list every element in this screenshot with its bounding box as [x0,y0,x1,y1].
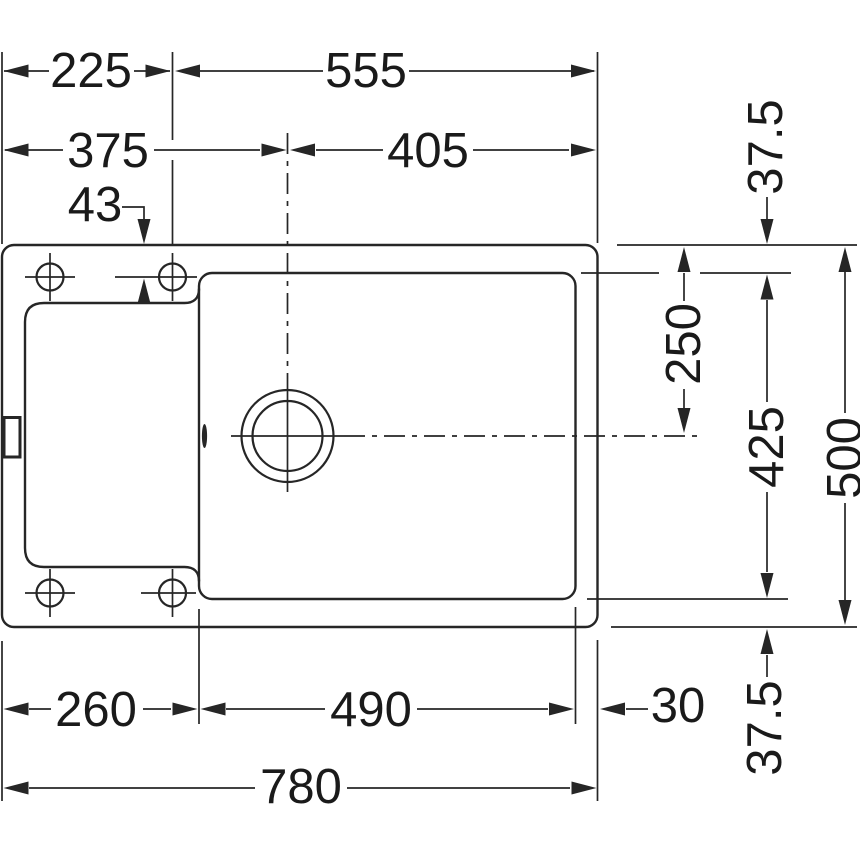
arrow-down [138,219,151,244]
arrow-down [761,573,774,598]
arrow-up [839,247,852,272]
arrow-right [572,782,597,795]
arrow-down [678,408,691,433]
dim-label-hole-offset: 43 [68,178,123,232]
arrow-left [4,65,29,78]
arrow-left [175,65,200,78]
arrow-left [4,782,29,795]
dim-label-left-to-drain: 375 [67,124,149,178]
dim-label-left-to-bowl: 260 [55,683,137,737]
dim-label-top-rim: 37.5 [739,99,793,194]
arrow-right [549,703,574,716]
drainboard-outline [25,289,199,581]
mounting-hole-top-left [25,253,75,301]
dimension-labels: 225 555 375 405 43 37.5 250 425 500 37.5… [50,44,860,814]
arrow-down [761,219,774,244]
dim-label-top-to-drain: 250 [657,303,711,385]
arrow-right [571,65,596,78]
arrow-left [201,703,226,716]
sink-dimension-drawing: 225 555 375 405 43 37.5 250 425 500 37.5… [0,0,860,860]
arrow-left [4,144,29,157]
drain [231,133,703,492]
mounting-hole-top-right [115,253,197,301]
overflow-slot [4,418,20,458]
bowl-edge-mark [202,424,207,448]
arrow-right [262,144,287,157]
dim-label-bottom-rim: 37.5 [738,680,792,775]
arrow-right [146,65,171,78]
arrow-left [600,703,625,716]
dim-label-overall-depth: 500 [818,417,860,499]
arrow-up [138,279,151,304]
dim-label-bowl-depth: 425 [740,406,794,488]
arrow-left [290,144,315,157]
dim-label-bowl-to-right: 30 [651,679,706,733]
arrow-right [571,144,596,157]
arrow-up [761,629,774,654]
arrow-left [4,703,29,716]
dim-label-hole-to-right: 555 [325,44,407,98]
dim-label-left-to-hole: 225 [50,44,132,98]
dim-leader-43 [122,207,144,220]
arrow-up [761,275,774,300]
mounting-hole-bottom-left [25,569,75,617]
drawing-canvas: 225 555 375 405 43 37.5 250 425 500 37.5… [0,0,860,860]
arrow-up [678,247,691,272]
dim-label-overall-width: 780 [260,760,342,814]
mounting-hole-bottom-right [141,569,196,617]
dim-label-bowl-width: 490 [330,683,412,737]
dim-label-drain-to-right: 405 [387,124,469,178]
arrow-down [839,600,852,625]
arrow-right [173,703,198,716]
dimension-lines [4,71,845,788]
